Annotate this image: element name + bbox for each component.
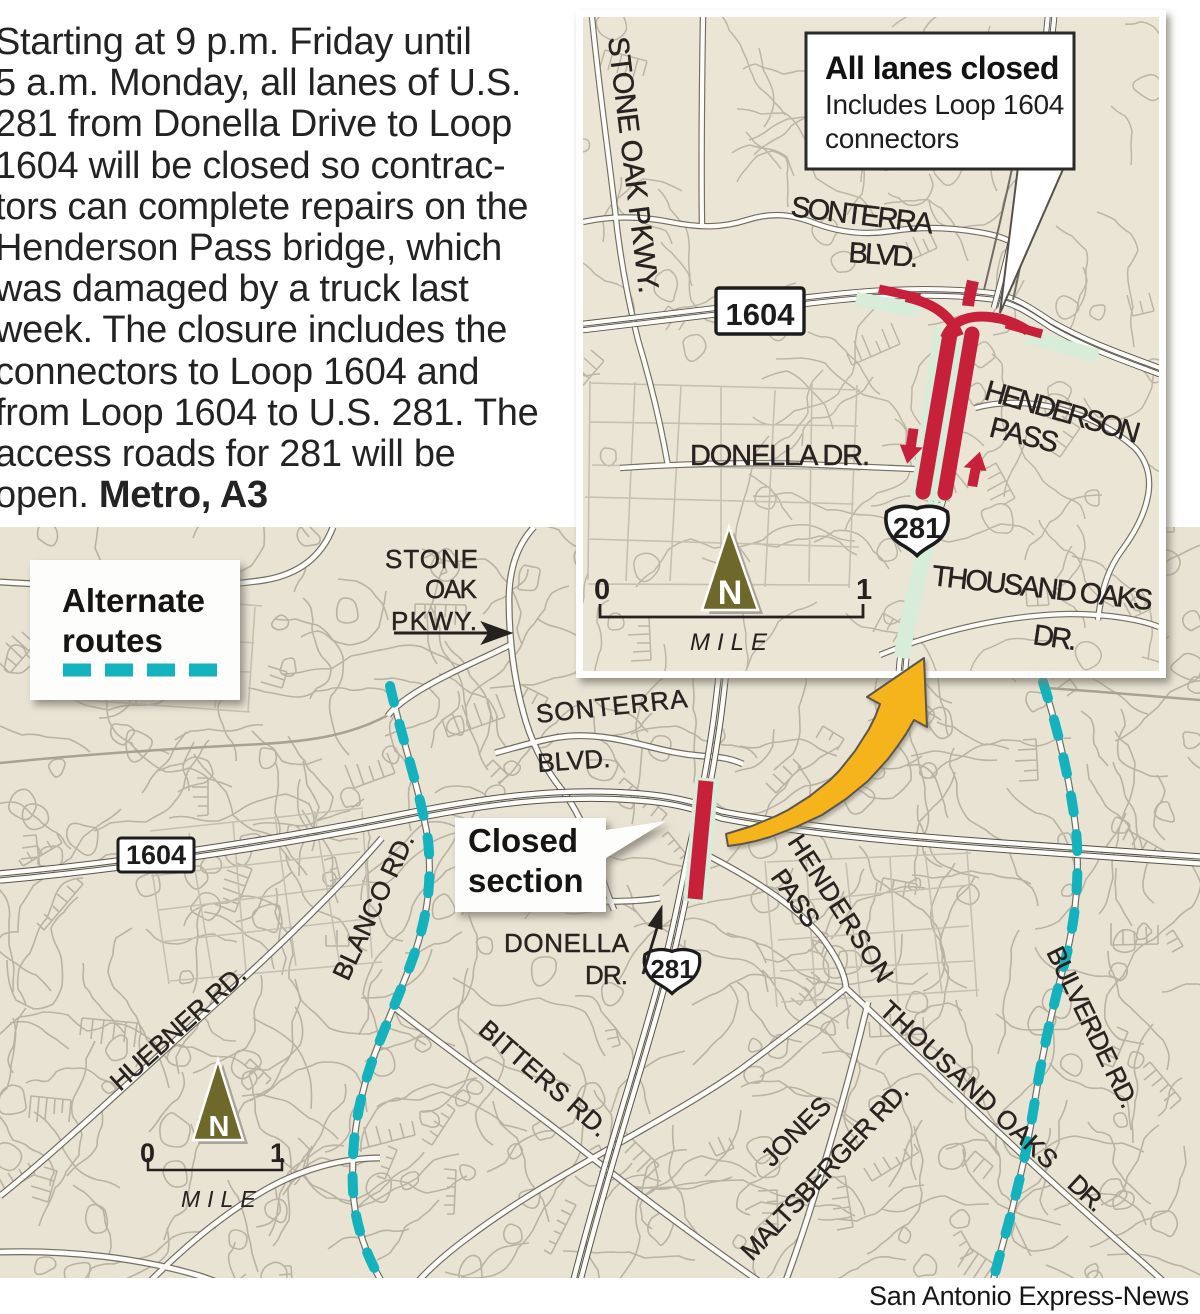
svg-text:281: 281 [893,513,942,545]
svg-text:N: N [718,574,743,612]
svg-text:0: 0 [594,574,610,606]
svg-text:MILE: MILE [181,1186,263,1212]
svg-text:BLVD.: BLVD. [536,743,611,778]
svg-text:All lanes closed: All lanes closed [825,50,1059,86]
svg-text:MILE: MILE [690,629,774,656]
svg-text:routes: routes [62,622,163,659]
svg-text:section: section [468,862,584,899]
svg-text:connectors: connectors [825,123,959,154]
svg-text:1604: 1604 [726,297,796,332]
svg-text:DR.: DR. [1031,619,1079,657]
svg-text:281: 281 [650,954,693,984]
svg-text:DR.: DR. [585,960,628,990]
svg-text:1: 1 [856,574,872,606]
svg-text:N: N [209,1111,230,1143]
svg-text:1604: 1604 [126,840,186,870]
svg-text:Alternate: Alternate [62,582,205,619]
svg-text:DONELLA DR.: DONELLA DR. [690,440,870,472]
svg-text:OAK: OAK [425,574,478,604]
svg-text:STONE: STONE [385,544,478,574]
svg-text:BLVD.: BLVD. [848,237,920,274]
svg-text:Includes Loop 1604: Includes Loop 1604 [825,89,1064,120]
svg-text:Closed: Closed [468,822,578,859]
svg-text:DONELLA: DONELLA [504,928,630,958]
